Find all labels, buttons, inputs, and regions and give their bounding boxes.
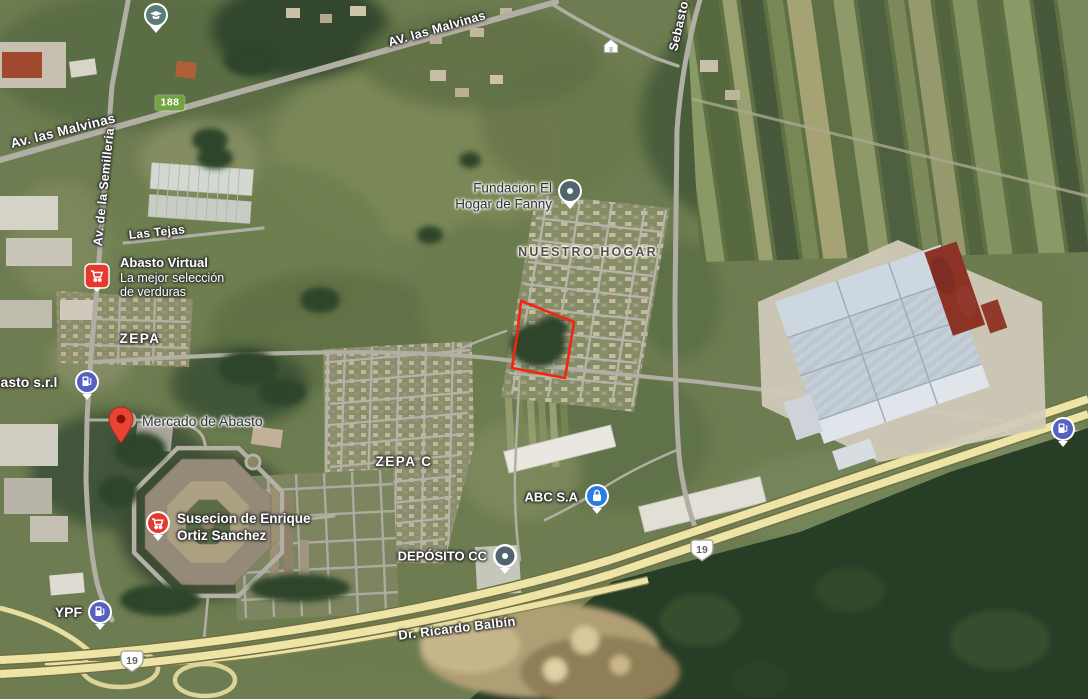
marker-inner-dot-icon — [117, 415, 126, 424]
school-pin[interactable] — [143, 2, 169, 35]
area-label-zepa: ZEPA — [119, 331, 160, 347]
svg-text:19: 19 — [126, 655, 138, 667]
deposito-poi-pin[interactable] — [492, 543, 518, 576]
place-label-deposito-cc[interactable]: DEPÓSITO CC — [398, 550, 487, 565]
poi-dot-icon — [502, 553, 508, 559]
poi-dot-icon — [567, 188, 573, 194]
route-shield-188: 188 — [155, 96, 184, 111]
abasto-virtual-title: Abasto Virtual — [120, 256, 224, 271]
area-label-zepa-c: ZEPA C — [375, 454, 432, 470]
house-icon — [602, 37, 620, 55]
place-label-mercado-de-abasto[interactable]: Mercado de Abasto — [142, 413, 263, 429]
abasto-virtual-sub2: de verduras — [120, 285, 224, 299]
place-label-abasto-srl[interactable]: basto s.r.l — [0, 374, 57, 390]
susecion-line1: Susecion de Enrique — [177, 510, 311, 527]
route-shield-19-west: 19 — [120, 650, 144, 673]
fundacion-poi-pin[interactable] — [557, 178, 583, 211]
east-gas-pin[interactable] — [1050, 416, 1076, 449]
fundacion-line1: Fundación El — [455, 180, 552, 196]
abc-lock-pin[interactable] — [584, 483, 610, 516]
susecion-line2: Ortiz Sanchez — [177, 527, 311, 544]
area-label-nuestro-hogar: NUESTRO HOGAR — [518, 245, 658, 259]
place-label-ypf[interactable]: YPF — [55, 604, 82, 620]
mercado-red-marker[interactable] — [108, 406, 134, 444]
satellite-map[interactable]: AV. las Malvinas Av. las Malvinas Av. de… — [0, 0, 1088, 699]
svg-text:19: 19 — [696, 544, 708, 556]
fundacion-line2: Hogar de Fanny — [455, 196, 552, 212]
abasto-virtual-cart-badge[interactable] — [84, 263, 110, 293]
place-label-susecion[interactable]: Susecion de Enrique Ortiz Sanchez — [177, 510, 311, 544]
ypf-gas-pin[interactable] — [87, 599, 113, 632]
route-shield-19-east: 19 — [690, 539, 714, 562]
place-label-abc-sa[interactable]: ABC S.A — [525, 491, 578, 506]
place-label-abasto-virtual[interactable]: Abasto Virtual La mejor selección de ver… — [120, 256, 224, 300]
place-label-fundacion[interactable]: Fundación El Hogar de Fanny — [455, 180, 552, 211]
abasto-srl-gas-pin[interactable] — [74, 369, 100, 402]
susecion-cart-pin[interactable] — [145, 510, 171, 543]
abasto-virtual-sub1: La mejor selección — [120, 271, 224, 285]
